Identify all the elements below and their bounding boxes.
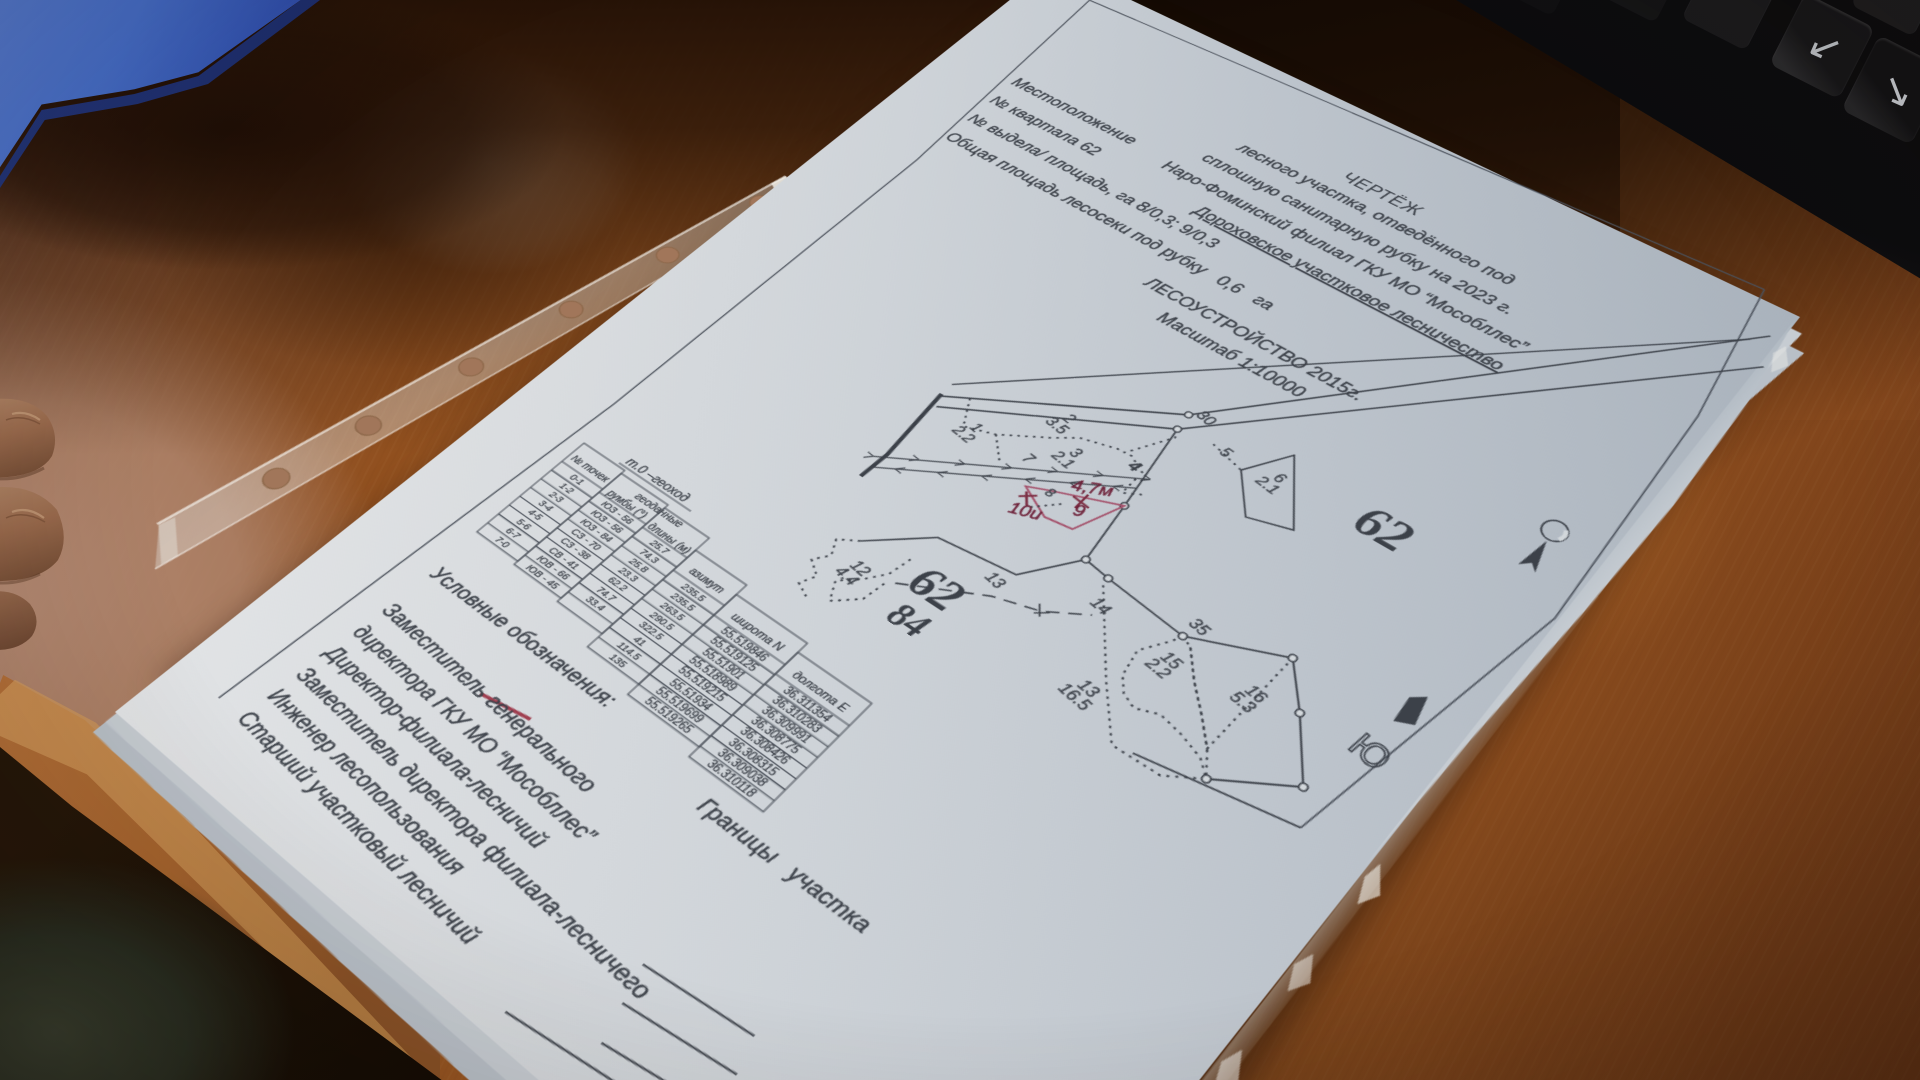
svg-text:7: 7 xyxy=(1018,450,1041,467)
svg-text:14: 14 xyxy=(1086,594,1116,618)
svg-text:9: 9 xyxy=(1070,500,1089,520)
svg-text:Ю: Ю xyxy=(1340,727,1400,778)
svg-text:10и: 10и xyxy=(1006,498,1046,524)
svg-text:5: 5 xyxy=(1216,444,1237,460)
svg-text:Границы участка: Границы участка xyxy=(691,794,877,939)
svg-text:Условные обозначения:: Условные обозначения: xyxy=(423,562,621,712)
svg-text:62: 62 xyxy=(1342,497,1423,562)
svg-text:35: 35 xyxy=(1184,615,1215,640)
svg-text:8: 8 xyxy=(1041,486,1059,501)
svg-text:13: 13 xyxy=(981,568,1011,592)
svg-text:4: 4 xyxy=(1123,457,1148,476)
